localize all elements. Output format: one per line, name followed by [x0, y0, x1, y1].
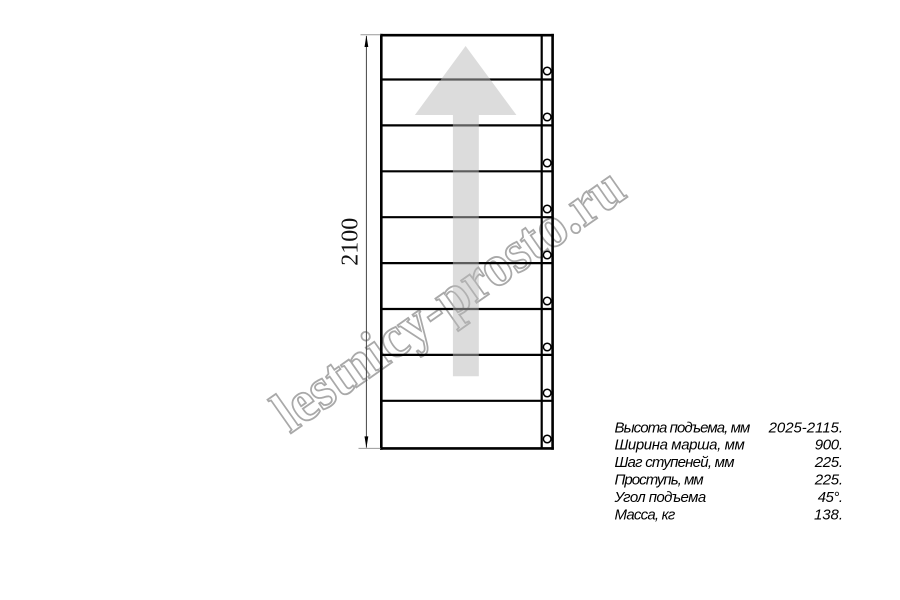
svg-text:Шаг ступеней, мм: Шаг ступеней, мм	[615, 454, 735, 471]
svg-text:225.: 225.	[814, 454, 843, 471]
svg-text:Ширина марша, мм: Ширина марша, мм	[615, 437, 745, 454]
svg-text:Высота подъема, мм: Высота подъема, мм	[615, 420, 751, 437]
svg-text:Проступь, мм: Проступь, мм	[615, 471, 704, 488]
svg-text:225.: 225.	[814, 471, 843, 488]
svg-text:2025-2115.: 2025-2115.	[768, 420, 843, 437]
svg-text:Масса, кг: Масса, кг	[615, 507, 676, 524]
svg-text:138.: 138.	[814, 507, 843, 524]
svg-text:Угол подъема: Угол подъема	[614, 489, 707, 506]
svg-text:45°.: 45°.	[818, 489, 843, 506]
svg-text:2100: 2100	[338, 218, 364, 266]
svg-text:900.: 900.	[815, 437, 843, 454]
